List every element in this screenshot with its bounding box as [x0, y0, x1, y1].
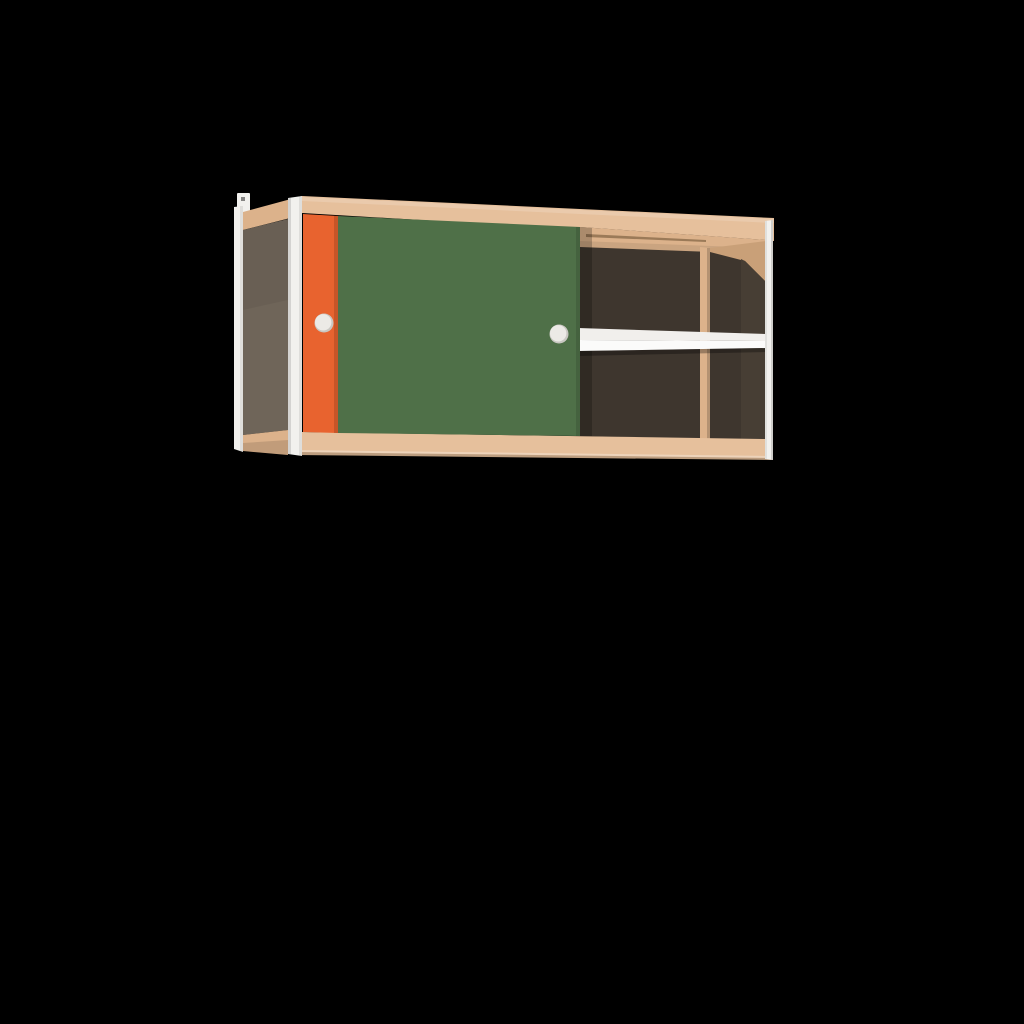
shading-overlay	[765, 221, 767, 459]
orange-door-handle-face	[315, 314, 331, 330]
shading-overlay	[299, 196, 302, 456]
green-door-handle-face	[550, 325, 566, 341]
render-background	[0, 0, 1024, 1024]
cabinet: Wall cabinet with sliding doors Wall-mou…	[234, 193, 774, 461]
shading-overlay	[334, 215, 338, 433]
shading-overlay	[288, 198, 291, 455]
shading-overlay	[771, 220, 773, 460]
cabinet-render-canvas: Wall cabinet with sliding doors Wall-mou…	[0, 0, 1024, 1024]
shading-overlay	[243, 219, 288, 310]
sliding-door-green: Green sliding door	[338, 216, 580, 436]
shading-overlay	[576, 227, 580, 436]
shading-overlay	[240, 206, 243, 452]
wall-bracket-slot	[241, 197, 245, 201]
product-render-stage: Wall cabinet with sliding doors Wall-mou…	[0, 0, 1024, 1024]
